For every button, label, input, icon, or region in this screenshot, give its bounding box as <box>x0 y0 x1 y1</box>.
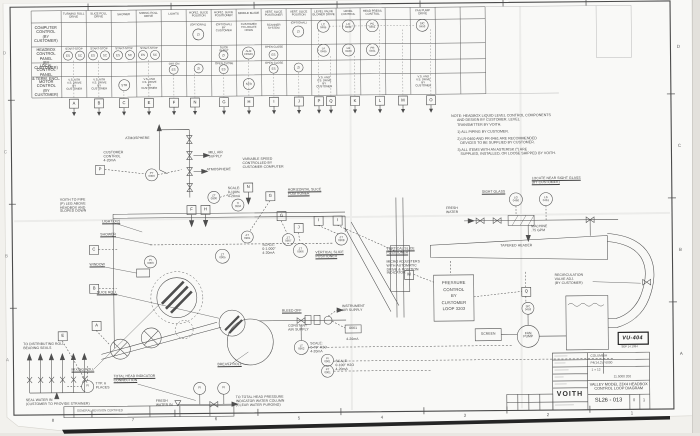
tag-lg0460: LG 0460 <box>508 197 524 203</box>
zone-8: 8 <box>49 418 57 423</box>
cell-optional-by-customer: (OPTIONAL) BY CUSTOMER <box>213 23 235 32</box>
bubble-str-1: STR <box>118 84 130 87</box>
letter-box-b: B <box>94 101 103 105</box>
label-fan-pump: FAN PUMP <box>520 332 536 339</box>
label-constant-air: CONSTANT AIR SUPPLY <box>288 324 309 332</box>
bubble-pr0461: PR 0461 <box>364 47 380 53</box>
note-2: 2) LR-0460 AND PR-0461 ARE RECOMMENDED D… <box>457 136 537 146</box>
cell-optional-2: (OPTIONAL) <box>288 21 310 24</box>
revision-strip-text: GENERAL REVISION CERTIFIED <box>77 409 123 413</box>
bubble-zi-1: ZI <box>192 33 204 36</box>
label-420ma: 4-20mA <box>346 338 358 342</box>
flag-f: F <box>187 208 196 212</box>
matrix-header-c13: HEAD PRESS. CONTROL <box>361 9 385 16</box>
label-sight-glass: SIGHT GLASS <box>482 191 505 195</box>
flag-m: M <box>405 273 414 277</box>
tag-zt0906: ZT 0906 <box>292 248 308 254</box>
bubble-zi-5: ZI <box>293 66 305 69</box>
scan-background: COMPUTER CONTROL (BY CUSTOMER) HEADBOX C… <box>0 0 700 433</box>
titleblock-field1: P4(14,2) / 6000 <box>590 361 612 365</box>
label-scale-pct: SCALE: 0-100% 4-20mA <box>228 187 241 199</box>
matrix-row-computer-control: COMPUTER CONTROL (BY CUSTOMER) <box>31 26 60 44</box>
approval-stamp-code: VU-404 <box>622 335 643 341</box>
letter-box-h: H <box>244 100 253 104</box>
titleblock-scale: 1 = 12 <box>592 369 601 373</box>
matrix-header-c6: HORIZ. SLICE POSITION <box>187 11 211 18</box>
zone-c-left: C <box>1 149 9 154</box>
label-instrument-air: INSTRUMENT AIR SUPPLY <box>342 305 365 313</box>
letter-box-i: I <box>269 99 278 103</box>
label-mill-air: MILL AIR SUPPLY <box>208 151 223 159</box>
bubble-es-3: ES <box>112 54 124 57</box>
tag-zt0905: ZT 0905 <box>214 253 230 259</box>
flag-g2: G <box>277 214 286 218</box>
cell-open-close-2: OPEN CLOSE <box>213 62 235 65</box>
bubble-alm-horn: ALM HORN <box>240 50 256 56</box>
label-scale-70: SCALE: 0-70" H2O 4-20mA <box>310 342 327 354</box>
cell-scanner-system: SCANNER SYSTEM <box>263 24 285 30</box>
zone-6: 6 <box>212 416 220 421</box>
letter-box-g: G <box>219 100 228 104</box>
matrix-header-c9: VERT. SLICE POSITIONER <box>262 10 286 17</box>
label-shower: SHOWER <box>100 233 116 237</box>
flag-b: B <box>90 287 99 291</box>
flag-q: Q <box>522 289 531 293</box>
bubble-es-7: ES <box>218 68 230 71</box>
label-screen: SCREEN <box>475 333 501 337</box>
zone-a-right: A <box>677 351 685 356</box>
cell-open-close-3: OPEN CLOSE <box>263 62 285 65</box>
titleblock-field2: 11.5000 200 <box>614 375 632 379</box>
label-vertical-slice-1: VERTICAL SLICE POSITIONER <box>315 251 343 259</box>
label-micro-adjusters: MICRO ADJUSTERS WITH AUTOMATIC DRIVE & P… <box>386 260 420 276</box>
tag-ls0461: LS 0461 <box>538 196 554 202</box>
zone-b-left: B <box>2 253 10 258</box>
letter-box-f: F <box>169 100 178 104</box>
zone-c-right: C <box>675 143 683 148</box>
label-bleed-off: BLEED OFF <box>282 309 302 313</box>
approval-stamp-date: SEP 14 1994 <box>621 345 637 348</box>
bubble-zi-3: ZI <box>217 54 229 57</box>
zone-4: 4 <box>378 415 386 420</box>
cell-start-stop-2: START-STOP <box>88 47 110 50</box>
flag-h: H <box>201 208 210 212</box>
cell-open-close-1: OPEN CLOSE <box>263 46 285 49</box>
letter-box-c: C <box>119 101 128 105</box>
label-breast-roll: BREAST ROLL <box>217 363 241 367</box>
label-total-head: TOTAL HEAD INDICATOR CONNECTION <box>114 375 156 383</box>
flag-n: N <box>244 185 253 189</box>
bubble-es-6: ES <box>168 68 180 71</box>
label-locate-near: LOCATE NEAR SIGHT GLASS (BY CUSTOMER) <box>532 177 581 185</box>
matrix-header-c3: SHOWER <box>112 13 136 16</box>
label-fresh-water: FRESH WATER <box>446 207 458 215</box>
bubble-es-8: ES <box>268 67 280 70</box>
tag-lt0902: LT 0902 <box>293 345 309 351</box>
note-header: NOTE: HEADBOX LIQUID LEVEL CONTROL COMPO… <box>451 113 551 127</box>
tag-zt0901: ZT 0901 <box>239 234 255 240</box>
zone-1: 1 <box>628 410 636 415</box>
bubble-es-1: ES <box>62 54 74 57</box>
cell-vs-drive-5: V.S. AND V.S. DRIVE BY CUSTOMER <box>412 75 434 87</box>
label-pressure-control: PRESSURE CONTROL BY CUSTOMER LOOP 3203 <box>434 280 474 313</box>
letter-box-o: O <box>426 98 435 102</box>
label-voith-pipe: VOITH TO PIPE (P) LEG ABOVE HEADBOX AND … <box>60 199 86 215</box>
label-horizontal-slice: HORIZONTAL SLICE POSITIONER <box>288 188 322 196</box>
bubble-zi-4: ZI <box>193 67 205 70</box>
letter-box-j: J <box>294 99 303 103</box>
flag-a: A <box>92 324 101 328</box>
tag-pt0901: PT 0901 <box>320 368 336 374</box>
flag-i2: I <box>333 218 342 222</box>
cell-slice-in-out: SLICE IN OUT <box>213 46 235 52</box>
titleblock-rev1: 1 <box>643 398 645 403</box>
titleblock-customer: COLUMBIA <box>590 355 607 359</box>
zone-2: 2 <box>544 412 552 417</box>
matrix-header-c14: FAN PUMP DRIVE <box>411 9 435 16</box>
tag-ti0904: TI 0904 <box>230 202 246 208</box>
bubble-sic0453: SIC 0453 <box>414 22 430 28</box>
label-typ6: TYP. 6 PLACES <box>96 382 110 390</box>
bubble-lc0460: LC 0460 <box>340 23 356 29</box>
note-1: 1) ALL PIPING BY CUSTOMER. <box>457 129 509 134</box>
zone-d-left: D <box>0 50 8 55</box>
label-slice-roll: SLICE ROLL <box>97 291 117 295</box>
label-box0661: 0661 <box>345 327 361 331</box>
label-customer-control: CUSTOMER CONTROL 4-20mA <box>103 151 123 163</box>
titleblock-title: VALLEY MODEL 23X4 HEADBOX CONTROL LOOP D… <box>590 382 648 391</box>
tag-pi0903: PI 0903 <box>142 259 158 265</box>
matrix-header-c1: TURNING ROLL DRIVE <box>62 12 86 19</box>
letter-box-e: E <box>144 100 153 104</box>
tag-zt0908: ZT 0908 <box>333 236 349 242</box>
label-atmosphere-2: ATMOSPHERE <box>207 168 231 172</box>
cell-vs-drive-2: V.S. MTR V.S. DRIVE BY CUSTOMER <box>88 78 110 90</box>
flag-e: E <box>58 334 67 338</box>
tag-fi-1: FI <box>194 387 206 390</box>
zone-a-left: A <box>3 357 11 362</box>
tag-pi0901: PI 0901 <box>319 357 335 363</box>
label-light: LIGHT (X2) <box>102 220 120 224</box>
flag-g1: G <box>266 194 275 198</box>
bubble-sc-2: SC <box>99 54 111 57</box>
matrix-header-c2: SLICE ROLL DRIVE <box>87 12 111 19</box>
label-mixing-roll: MIXING ROLL <box>72 368 95 372</box>
tag-fi-2: FI <box>218 387 230 390</box>
label-scale-100: SCALE: 0-100" H2O 4-20mA <box>335 360 354 372</box>
matrix-header-c5: LIGHTS <box>162 13 186 16</box>
cell-start-stop-4: START-STOP <box>138 47 160 50</box>
letter-box-q: Q <box>326 99 335 103</box>
flag-p: P <box>96 168 105 172</box>
zone-3: 3 <box>461 413 469 418</box>
cell-customer-locate-horn: CUSTOMER TO LOCATE HORN <box>238 23 260 32</box>
cell-vs-drive-4: V.S. AND V.S. DRIVE BY CUSTOMER <box>313 76 335 88</box>
label-tapered-header: TAPERED HEADER <box>500 244 532 248</box>
tag-sic0453: SIC 0453 <box>520 305 536 311</box>
letter-box-n: N <box>190 100 199 104</box>
letter-box-a: A <box>69 101 78 105</box>
titleblock-dwg-no: SL26 - 013 <box>595 397 622 403</box>
label-total-head-purge: TO TOTAL HEAD PRESSURE INDICATOR WATER C… <box>236 396 285 408</box>
matrix-header-c8: MIDDLE BLADE <box>237 12 261 15</box>
tag-zt0900: ZT 0900 <box>206 194 222 200</box>
tag-fi-seal: FI <box>82 385 94 388</box>
bubble-lr0460: LR 0460 <box>340 47 356 53</box>
matrix-header-c12: LEVEL CONTROL <box>336 9 360 16</box>
matrix-header-c7: HORIZ. SLICE POSITIONER <box>212 11 236 18</box>
scanner-bed-edge <box>692 0 700 433</box>
cell-vs-drive-1: V.S. MTR V.S. DRIVE BY CUSTOMER <box>63 78 85 90</box>
letter-box-m: M <box>398 98 407 102</box>
bubble-es-4: ES <box>137 54 149 57</box>
zone-7: 7 <box>129 417 137 422</box>
letter-box-k: K <box>350 98 359 102</box>
label-machine: MACHINE .75 GPM <box>531 225 547 233</box>
letter-box-p: P <box>314 99 323 103</box>
drawing-sheet: COMPUTER CONTROL (BY CUSTOMER) HEADBOX C… <box>0 0 700 436</box>
bubble-es-2: ES <box>87 54 99 57</box>
zone-5: 5 <box>295 415 303 420</box>
bubble-zi-2: ZI <box>292 30 304 33</box>
cell-start-stop-3: START-STOP <box>113 47 135 50</box>
matrix-row-motor-control: MOTOR CONTROL (BY CUSTOMER) <box>32 80 61 98</box>
bubble-pc0461: PC 0461 <box>364 23 380 29</box>
letter-box-l: L <box>375 98 384 102</box>
zone-b-right: B <box>676 247 684 252</box>
label-scale-1000: SCALE: 0-1.000" 4-20mA <box>262 244 275 256</box>
bubble-es-5: ES <box>267 53 279 56</box>
matrix-header-c11: LEVEL VALVE BLOWER DRIVE <box>312 10 336 17</box>
tag-zt0907: ZT 0907 <box>280 237 296 243</box>
bubble-la0465: LA 0465 <box>315 47 331 53</box>
flag-j: J <box>294 226 303 230</box>
tag-py0900: PY 0900 <box>144 172 160 178</box>
flag-c: C <box>89 248 98 252</box>
cell-vs-drive-3: V.S. AND V.S. DRIVE BY CUSTOMER <box>138 77 160 89</box>
label-recirculation: RECIRCULATION VALVE ADJ. (BY CUSTOMER) <box>555 274 584 286</box>
label-atmosphere-1: ATMOSPHERE <box>125 137 149 141</box>
bubble-sc-3: SC <box>124 54 136 57</box>
titleblock-rev0: 0 <box>633 398 635 403</box>
label-seal-water: SEAL WATER IN (CUSTOMER TO PROVIDE STRAI… <box>26 399 90 407</box>
label-vertical-slice-2: VERTICAL SLICE POSITIONER <box>386 247 414 255</box>
flag-i1: I <box>314 218 323 222</box>
label-fresh-water-in: FRESH WATER IN <box>156 400 173 408</box>
label-variable-speed: VARIABLE SPEED CONTROLLED BY CUSTOMER CO… <box>242 158 283 170</box>
bubble-lc0465: LC 0465 <box>315 23 331 29</box>
zone-d-right: D <box>674 44 682 49</box>
cell-off-on: OFF ON <box>163 63 185 66</box>
bubble-sc-1: SC <box>74 54 86 57</box>
cell-optional: (OPTIONAL) <box>187 23 209 26</box>
matrix-header-c10: VERT. SLICE POSITION <box>287 10 311 17</box>
label-dist-roll: TO DISTRIBUTING ROLL BEARING SEALS <box>23 343 64 351</box>
matrix-header-c4: MIXING ROLL DRIVE <box>137 11 161 18</box>
label-window: WINDOW <box>90 263 105 267</box>
bubble-str-2: STR <box>243 83 255 86</box>
cell-start-stop-1: START-STOP <box>63 48 85 51</box>
bubble-sc-4: SC <box>149 53 161 56</box>
note-3: 3) ALL ITEMS WITH AN ASTERISK (*) ARE SU… <box>457 147 555 157</box>
titleblock-brand-logo: VOITH <box>557 391 583 399</box>
